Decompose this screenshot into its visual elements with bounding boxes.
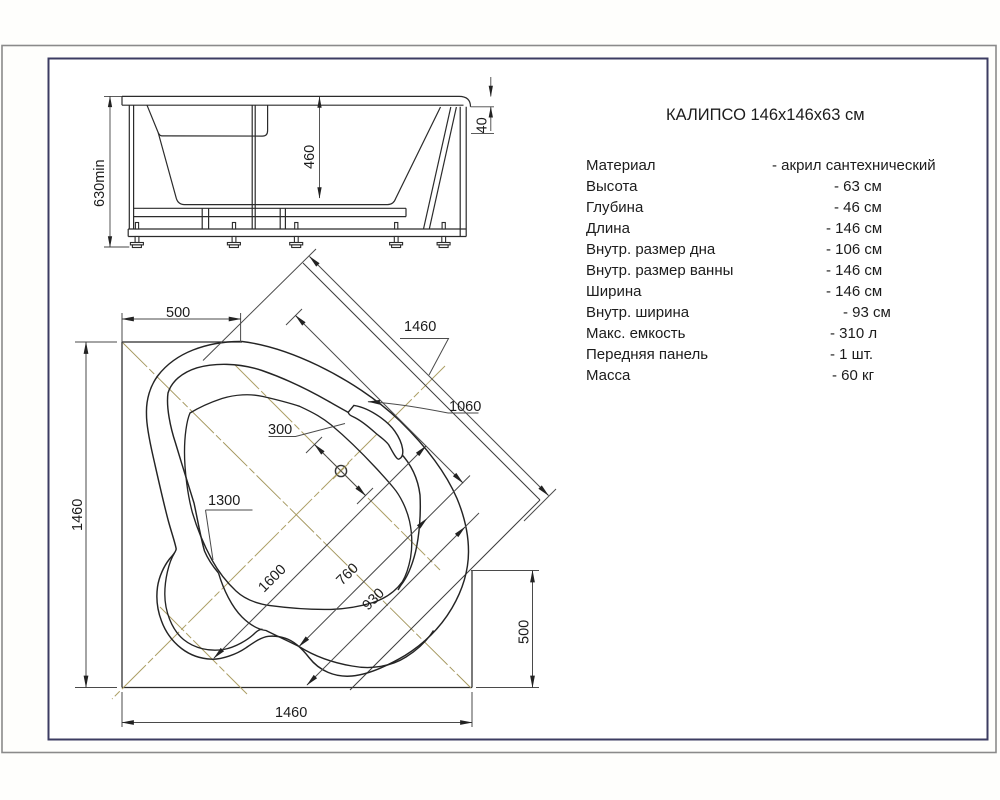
svg-text:500: 500 xyxy=(166,305,190,321)
svg-text:- 310 л: - 310 л xyxy=(830,325,877,342)
svg-text:500: 500 xyxy=(517,620,533,644)
svg-text:630min: 630min xyxy=(92,159,108,207)
svg-text:40: 40 xyxy=(475,117,491,133)
svg-text:Глубина: Глубина xyxy=(586,199,644,216)
svg-text:Передняя панель: Передняя панель xyxy=(586,346,708,363)
svg-text:1060: 1060 xyxy=(449,399,481,415)
svg-text:1460: 1460 xyxy=(275,705,307,721)
svg-text:- 60 кг: - 60 кг xyxy=(832,367,875,384)
svg-text:КАЛИПСО 146х146х63 см: КАЛИПСО 146х146х63 см xyxy=(666,106,865,124)
svg-text:Высота: Высота xyxy=(586,178,638,195)
svg-text:- 146 см: - 146 см xyxy=(826,220,882,237)
svg-text:Внутр. размер ванны: Внутр. размер ванны xyxy=(586,262,733,279)
svg-text:- 46 см: - 46 см xyxy=(834,199,882,216)
svg-text:Внутр. ширина: Внутр. ширина xyxy=(586,304,690,321)
svg-text:- 146 см: - 146 см xyxy=(826,262,882,279)
svg-text:Длина: Длина xyxy=(586,220,631,237)
svg-text:300: 300 xyxy=(268,422,292,438)
svg-text:1460: 1460 xyxy=(70,499,86,531)
svg-text:- 106 см: - 106 см xyxy=(826,241,882,258)
svg-text:- 146 см: - 146 см xyxy=(826,283,882,300)
svg-text:- 93 см: - 93 см xyxy=(843,304,891,321)
svg-text:Ширина: Ширина xyxy=(586,283,642,300)
svg-text:1460: 1460 xyxy=(404,319,436,335)
svg-text:- 1 шт.: - 1 шт. xyxy=(830,346,873,363)
svg-text:- 63 см: - 63 см xyxy=(834,178,882,195)
svg-text:- акрил сантехнический: - акрил сантехнический xyxy=(772,157,936,174)
svg-text:Масса: Масса xyxy=(586,367,631,384)
svg-text:Макс. емкость: Макс. емкость xyxy=(586,325,686,342)
svg-text:Материал: Материал xyxy=(586,157,656,174)
svg-text:460: 460 xyxy=(302,145,318,169)
svg-text:1300: 1300 xyxy=(208,493,240,509)
svg-text:Внутр. размер дна: Внутр. размер дна xyxy=(586,241,716,258)
